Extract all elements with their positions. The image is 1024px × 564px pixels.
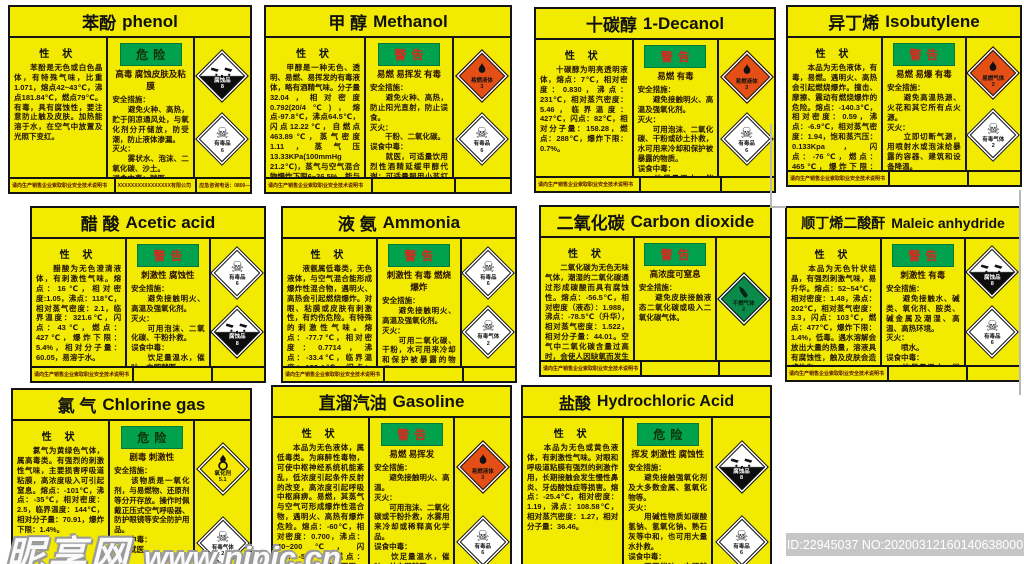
- label-title-chinese: 十碳醇: [586, 11, 637, 36]
- properties-column: 性 状 甲醇是一种无色、透明、易燃、易挥发的有毒液体，略有酒精气味。分子量32.…: [266, 38, 366, 177]
- signal-word: 警告: [893, 43, 955, 66]
- flammable-liquid-diamond-icon: 易燃液体3: [454, 48, 510, 104]
- label-body: 性 状 本品为无色针状结晶，有强烈刺激气味，易升华。熔点：52~54℃，相对密度…: [787, 239, 1019, 365]
- hazard-statements: 刺激性 有毒: [886, 269, 960, 281]
- diamond-content: ☠有毒气体2: [965, 107, 1021, 163]
- label-title-chinese: 甲 醇: [328, 9, 367, 34]
- layout-line-artifact: [770, 206, 786, 208]
- label-title-chinese: 液 氨: [338, 210, 377, 235]
- diamond-content: 腐蚀品8: [964, 244, 1020, 300]
- label-title: 顺丁烯二酸酐 Maleic anhydride: [787, 208, 1019, 239]
- diamond-content: ☠有毒品6: [460, 245, 516, 301]
- image-id-text: ID:22945037 NO:20200312160140638000: [787, 538, 1023, 552]
- safety-measures-text: 安全措施： 避免接触水、碱类、氧化剂、胺类、碱金属及潮湿、高温、高热环境。 灭火…: [886, 284, 960, 365]
- layout-line-artifact: [1019, 190, 1021, 395]
- label-title-chinese: 异丁烯: [828, 9, 879, 34]
- diamond-class-number: 8: [991, 281, 994, 288]
- label-body: 性 状 液氨属低毒类，无色液体，与空气混合能形成爆炸性混合物，遇明火、高热会引起…: [283, 239, 515, 366]
- label-title: 液 氨 Ammonia: [283, 208, 515, 239]
- label-title-english: Ammonia: [383, 213, 460, 233]
- properties-text: 二氧化碳为无色无味气体，潮湿的二氧化碳通过形成碳酸而具有腐蚀性。熔点：-56.5…: [545, 263, 629, 360]
- label-title-english: phenol: [122, 12, 178, 32]
- label-title-english: Chlorine gas: [102, 395, 205, 415]
- label-title-chinese: 顺丁烯二酸酐: [801, 213, 885, 233]
- hazard-statements: 易燃 易挥发: [374, 448, 449, 460]
- diamond-column: ☠有毒品6腐蚀品8: [211, 239, 264, 366]
- footer-company: [385, 368, 464, 381]
- diamond-class-number: 6: [481, 550, 484, 557]
- footer-note: 请向生产销售企业索取职业安全技术说明书: [10, 179, 116, 192]
- diamond-class-number: 6: [236, 281, 239, 288]
- skull-icon: ☠: [216, 124, 229, 141]
- warning-column: 危险 挥发 刺激性 腐蚀性 安全措施： 避免接触强氧化剂及大多数金属、氢氧化物等…: [624, 418, 713, 564]
- label-title: 氯 气 Chlorine gas: [13, 390, 250, 421]
- safety-measures-text: 安全措施： 避免接触强氧化剂及大多数金属、氢氧化物等。 灭火： 用碱性物质如碳酸…: [628, 463, 707, 564]
- signal-word: 危险: [637, 423, 699, 446]
- hazard-statements: 高浓度可窒息: [639, 268, 711, 280]
- properties-heading: 性 状: [527, 425, 618, 440]
- label-title-chinese: 苯酚: [82, 9, 116, 34]
- toxic-diamond-icon: ☠有毒品6: [455, 514, 511, 564]
- footer-note: 请向生产销售企业索取职业安全技术说明书: [787, 367, 889, 380]
- skull-icon: ☠: [740, 124, 753, 141]
- properties-text: 醋酸为无色澄清液体，有刺激性气味。熔点：16℃，相对密度:1.05，沸点：118…: [36, 264, 121, 363]
- diamond-class-number: 2: [992, 82, 995, 89]
- signal-word: 危险: [120, 43, 182, 66]
- properties-heading: 性 状: [540, 47, 628, 62]
- toxic-diamond-icon: ☠有毒品6: [714, 514, 770, 564]
- safety-measures-text: 安全措施： 避免火种、高热，贮于阴凉通风处，与氧化剂分开储放，防受潮，防止液体渗…: [112, 95, 188, 177]
- diamond-class-number: 3: [480, 84, 483, 91]
- corrosive-icon: [210, 61, 234, 78]
- label-title-english: Maleic anhydride: [891, 215, 1005, 231]
- image-id-bar: ID:22945037 NO:20200312160140638000: [786, 533, 1024, 556]
- hazard-statements: 刺激性 有毒 燃烧 爆炸: [382, 269, 456, 293]
- corrosive-icon: [980, 258, 1004, 275]
- safety-measures-text: 安全措施： 避免接触明火、高温及强氧化剂。 灭火： 可用泡沫、二氧化碳、干粉扑救…: [131, 284, 205, 366]
- hazard-statements: 刺激性 腐蚀性: [131, 269, 205, 281]
- oxidizer-diamond-icon: 氧化剂5.1: [195, 441, 251, 497]
- chemical-safety-label: 氯 气 Chlorine gas 性 状 氯气为黄绿色气体，属高毒类。有强烈的刺…: [11, 388, 252, 564]
- label-title-english: Isobutylene: [885, 12, 979, 32]
- diamond-class-number: 6: [487, 281, 490, 288]
- corrosive-diamond-icon: 腐蚀品8: [714, 439, 770, 495]
- diamond-class-number: 5.1: [219, 477, 227, 484]
- footer-note: 请向生产销售企业索取职业安全技术说明书: [266, 179, 373, 192]
- signal-word: 警告: [388, 244, 450, 267]
- diamond-class-number: 6: [745, 148, 748, 155]
- label-title-chinese: 盐酸: [559, 390, 591, 414]
- chemical-safety-label: 盐酸 Hydrochloric Acid 性 状 本品为无色或黄色液体，有刺激性…: [521, 385, 772, 564]
- properties-text: 本品为无色液体，属低毒类。为麻醉性毒物，可使中枢神经系统机能紊乱，低浓度引起条件…: [277, 443, 364, 564]
- toxic-diamond-icon: ☠有毒品6: [460, 245, 516, 301]
- card-footer: 请向生产销售企业索取职业安全技术说明书: [787, 365, 1019, 380]
- skull-icon: ☠: [482, 258, 495, 275]
- diamond-column: 腐蚀品8☠有毒品6: [195, 38, 250, 177]
- warning-column: 警告 易燃 有毒 安全措施： 避免接触明火、高温及强氧化剂。 灭火： 可用泡沫、…: [634, 40, 720, 176]
- warning-column: 危险 剧毒 刺激性 安全措施： 该物质是一氧化剂，与易燃物、还原剂等分开存放。操…: [110, 421, 195, 564]
- chemical-safety-label: 顺丁烯二酸酐 Maleic anhydride 性 状 本品为无色针状结晶，有强…: [785, 206, 1021, 382]
- toxic-diamond-icon: ☠有毒品6: [194, 111, 250, 167]
- properties-column: 性 状 氯气为黄绿色气体，属高毒类。有强烈的刺激性气味，主要损害呼吸道粘膜，高浓…: [13, 421, 110, 564]
- skull-icon: ☠: [216, 528, 229, 545]
- chemical-safety-label: 二氧化碳 Carbon dioxide 性 状 二氧化碳为无色无味气体，潮湿的二…: [539, 205, 772, 377]
- signal-word: 警告: [381, 423, 443, 446]
- corrosive-diamond-icon: 腐蚀品8: [209, 304, 265, 360]
- properties-text: 液氨属低毒类，无色液体，与空气混合能形成爆炸性混合物，遇明火、高热会引起燃烧爆炸…: [287, 264, 372, 366]
- skull-icon: ☠: [231, 258, 244, 275]
- diamond-column: 易燃液体3☠有毒品6: [455, 418, 510, 564]
- diamond-content: 易燃液体3: [455, 439, 511, 495]
- card-footer: 请向生产销售企业索取职业安全技术说明书: [283, 366, 515, 381]
- diamond-content: 腐蚀品8: [714, 439, 770, 495]
- footer-note: 请向生产销售企业索取职业安全技术说明书: [541, 362, 642, 375]
- signal-word: 危险: [121, 426, 183, 449]
- warning-column: 警告 易燃 易挥发 有毒 安全措施： 避免火种、高热，防止阳光直射，防止误食。 …: [366, 38, 454, 177]
- label-body: 性 状 本品为无色液体，属低毒类。为麻醉性毒物，可使中枢神经系统机能紊乱，低浓度…: [273, 418, 510, 564]
- flammable-gas-diamond-icon: 易燃气体2: [965, 45, 1021, 101]
- footer-company: [890, 172, 969, 185]
- corrosive-icon: [730, 452, 754, 469]
- properties-heading: 性 状: [792, 45, 877, 60]
- hazard-statements: 高毒 腐蚀皮肤及粘膜: [112, 68, 188, 92]
- footer-phone: [464, 368, 515, 381]
- diamond-class-number: 2: [742, 307, 745, 314]
- label-title-english: Gasoline: [393, 392, 465, 412]
- diamond-content: ☠有毒气体2: [460, 304, 516, 360]
- label-title-english: 1-Decanol: [643, 14, 724, 34]
- footer-note: 请向生产销售企业索取职业安全技术说明书: [788, 172, 890, 185]
- label-title-english: Carbon dioxide: [631, 212, 755, 232]
- toxic-gas-diamond-icon: ☠有毒气体2: [195, 515, 251, 564]
- label-title-chinese: 二氧化碳: [557, 209, 625, 234]
- diamond-class-number: 3: [481, 475, 484, 482]
- card-footer: 请向生产销售企业索取职业安全技术说明书 XXXXXXXXXXXXXXXX有限公司…: [10, 177, 250, 192]
- oxidizer-icon: [215, 454, 231, 471]
- corrosive-icon: [225, 317, 249, 334]
- footer-note: 请向生产销售企业索取职业安全技术说明书: [536, 178, 641, 191]
- footer-company: [373, 179, 456, 192]
- properties-text: 十碳醇为明亮透明液体，熔点：7℃，相对密度：0.830，沸点：231℃，相对蒸汽…: [540, 65, 628, 154]
- diamond-content: 腐蚀品8: [194, 48, 250, 104]
- properties-column: 性 状 液氨属低毒类，无色液体，与空气混合能形成爆炸性混合物，遇明火、高热会引起…: [283, 239, 378, 366]
- diamond-class-number: 8: [221, 84, 224, 91]
- label-title-chinese: 氯 气: [58, 392, 97, 417]
- hazard-statements: 易燃 有毒: [638, 70, 714, 82]
- footer-company: [642, 362, 720, 375]
- properties-column: 性 状 本品为无色针状结晶，有强烈刺激气味，易升华。熔点：52~54℃，相对密度…: [787, 239, 882, 365]
- chemical-safety-label: 十碳醇 1-Decanol 性 状 十碳醇为明亮透明液体，熔点：7℃，相对密度：…: [534, 7, 776, 193]
- label-body: 性 状 醋酸为无色澄清液体，有刺激性气味。熔点：16℃，相对密度:1.05，沸点…: [32, 239, 264, 366]
- toxic-diamond-icon: ☠有毒品6: [964, 304, 1020, 360]
- toxic-gas-diamond-icon: ☠有毒气体2: [460, 304, 516, 360]
- skull-icon: ☠: [735, 527, 748, 544]
- diamond-content: ☠有毒品6: [194, 111, 250, 167]
- diamond-column: ☠有毒品6☠有毒气体2: [462, 239, 515, 366]
- footer-phone: [720, 362, 770, 375]
- diamond-class-number: 8: [236, 341, 239, 348]
- footer-note: 请向生产销售企业索取职业安全技术说明书: [32, 368, 134, 381]
- hazard-statements: 易燃 易爆 有毒: [887, 68, 961, 80]
- card-footer: 请向生产销售企业索取职业安全技术说明书: [536, 176, 774, 191]
- footer-phone: [456, 179, 510, 192]
- safety-measures-text: 安全措施： 避免接触明火、高温及强氧化剂。 灭火： 可用二氧化碳、干粉，水可用来…: [382, 296, 456, 366]
- corrosive-diamond-icon: 腐蚀品8: [194, 48, 250, 104]
- skull-icon: ☠: [986, 317, 999, 334]
- properties-heading: 性 状: [287, 246, 372, 261]
- footer-phone: [969, 172, 1020, 185]
- corrosive-diamond-icon: 腐蚀品8: [964, 244, 1020, 300]
- warning-column: 警告 刺激性 有毒 燃烧 爆炸 安全措施： 避免接触明火、高温及强氧化剂。 灭火…: [378, 239, 462, 366]
- flame-icon: [739, 62, 755, 79]
- hazard-statements: 易燃 易挥发 有毒: [370, 68, 448, 80]
- footer-phone: [213, 368, 264, 381]
- properties-column: 性 状 二氧化碳为无色无味气体，潮湿的二氧化碳通过形成碳酸而具有腐蚀性。熔点：-…: [541, 238, 635, 360]
- warning-column: 警告 刺激性 腐蚀性 安全措施： 避免接触明火、高温及强氧化剂。 灭火： 可用泡…: [127, 239, 211, 366]
- chemical-safety-label: 直溜汽油 Gasoline 性 状 本品为无色液体，属低毒类。为麻醉性毒物，可使…: [271, 385, 512, 564]
- diamond-content: 易燃气体2: [965, 45, 1021, 101]
- footer-phone: 应急咨询电话：0800—0000000: [197, 179, 250, 192]
- label-title: 甲 醇 Methanol: [266, 7, 510, 38]
- diamond-class-number: 2: [221, 551, 224, 558]
- properties-heading: 性 状: [17, 428, 104, 443]
- signal-word: 警告: [644, 45, 706, 68]
- properties-column: 性 状 苯酚是无色或白色晶体，有特殊气味，比重1.071，熔点42~43℃，沸点…: [10, 38, 108, 177]
- diamond-content: 不燃气体2: [716, 271, 772, 327]
- skull-icon: ☠: [476, 527, 489, 544]
- flame-icon: [474, 61, 490, 78]
- footer-phone: [722, 178, 774, 191]
- footer-company: XXXXXXXXXXXXXXXX有限公司: [116, 179, 198, 192]
- chemical-safety-label: 液 氨 Ammonia 性 状 液氨属低毒类，无色液体，与空气混合能形成爆炸性混…: [281, 206, 517, 383]
- warning-column: 警告 易燃 易爆 有毒 安全措施： 避免高温热源、火花和其它所有点火源。 灭火：…: [883, 38, 967, 170]
- skull-icon: ☠: [482, 317, 495, 334]
- label-body: 性 状 十碳醇为明亮透明液体，熔点：7℃，相对密度：0.830，沸点：231℃，…: [536, 40, 774, 176]
- safety-measures-text: 安全措施： 避免火种、高热，防止阳光直射，防止误食。 灭火： 干粉、二氧化碳。 …: [370, 83, 448, 177]
- diamond-content: 腐蚀品8: [209, 304, 265, 360]
- diamond-content: ☠有毒品6: [455, 514, 511, 564]
- label-title: 异丁烯 Isobutylene: [788, 7, 1020, 38]
- diamond-content: 易燃液体3: [454, 48, 510, 104]
- properties-column: 性 状 十碳醇为明亮透明液体，熔点：7℃，相对密度：0.830，沸点：231℃，…: [536, 40, 634, 176]
- diamond-content: ☠有毒品6: [964, 304, 1020, 360]
- chemical-safety-label: 异丁烯 Isobutylene 性 状 本品为无色液体，有毒，易燃。遇明火、高热…: [786, 5, 1022, 187]
- warning-column: 警告 高浓度可窒息 安全措施： 避免皮肤接触液态二氧化碳或吸入二氧化碳气体。: [635, 238, 717, 360]
- label-body: 性 状 本品为无色液体，有毒，易燃。遇明火、高热会引起燃烧爆炸。撞击、摩擦、震动…: [788, 38, 1020, 170]
- skull-icon: ☠: [475, 124, 488, 141]
- diamond-content: ☠有毒品6: [719, 111, 775, 167]
- stock-image-preview: { "shared": { "props_heading": "性 状" }, …: [0, 0, 1024, 564]
- properties-heading: 性 状: [791, 246, 876, 261]
- flammable-liquid-diamond-icon: 易燃液体3: [455, 439, 511, 495]
- safety-measures-text: 安全措施： 该物质是一氧化剂，与易燃物、还原剂等分开存放。操作时佩戴正压式空气呼…: [114, 466, 189, 555]
- properties-heading: 性 状: [36, 246, 121, 261]
- safety-measures-text: 安全措施： 避免接触明火、高温及强氧化剂。 灭火： 可用泡沫、二氧化碳、干粉或砂…: [638, 85, 714, 176]
- diamond-content: ☠有毒品6: [209, 245, 265, 301]
- diamond-content: ☠有毒品6: [454, 111, 510, 167]
- label-body: 性 状 甲醇是一种无色、透明、易燃、易挥发的有毒液体，略有酒精气味。分子量32.…: [266, 38, 510, 177]
- diamond-column: 易燃液体3☠有毒品6: [719, 40, 774, 176]
- properties-column: 性 状 本品为无色液体，有毒，易燃。遇明火、高热会引起燃烧爆炸。撞击、摩擦、震动…: [788, 38, 883, 170]
- footer-company: [641, 178, 722, 191]
- label-title: 直溜汽油 Gasoline: [273, 387, 510, 418]
- label-body: 性 状 氯气为黄绿色气体，属高毒类。有强烈的刺激性气味，主要损害呼吸道粘膜，高浓…: [13, 421, 250, 564]
- label-title: 盐酸 Hydrochloric Acid: [523, 387, 770, 418]
- diamond-content: 氧化剂5.1: [195, 441, 251, 497]
- toxic-gas-diamond-icon: ☠有毒气体2: [965, 107, 1021, 163]
- warning-column: 警告 易燃 易挥发 安全措施： 避免接触明火、高温。 灭火： 可用泡沫、二氧化碳…: [370, 418, 455, 564]
- chemical-safety-label: 苯酚 phenol 性 状 苯酚是无色或白色晶体，有特殊气味，比重1.071，熔…: [8, 5, 252, 194]
- properties-text: 本品为无色或黄色液体，有刺激性气味。对眼和呼吸道粘膜有强烈的刺激作用，长期接触会…: [527, 443, 618, 532]
- toxic-diamond-icon: ☠有毒品6: [209, 245, 265, 301]
- properties-column: 性 状 本品为无色或黄色液体，有刺激性气味。对眼和呼吸道粘膜有强烈的刺激作用，长…: [523, 418, 624, 564]
- safety-measures-text: 安全措施： 避免高温热源、火花和其它所有点火源。 灭火： 立即切断气源，用喷射水…: [887, 83, 961, 170]
- label-title: 苯酚 phenol: [10, 7, 250, 38]
- cylinder-icon: [735, 284, 752, 301]
- card-footer: 请向生产销售企业索取职业安全技术说明书: [266, 177, 510, 192]
- signal-word: 警告: [644, 243, 706, 266]
- diamond-content: 易燃液体3: [719, 49, 775, 105]
- label-title-english: Hydrochloric Acid: [597, 393, 734, 411]
- properties-heading: 性 状: [277, 425, 364, 440]
- properties-text: 本品为无色液体，有毒，易燃。遇明火、高热会引起燃烧爆炸。撞击、摩擦、震动有燃烧爆…: [792, 63, 877, 170]
- properties-heading: 性 状: [270, 45, 360, 60]
- card-footer: 请向生产销售企业索取职业安全技术说明书: [788, 170, 1020, 185]
- properties-heading: 性 状: [14, 45, 102, 60]
- diamond-class-number: 2: [487, 341, 490, 348]
- signal-word: 警告: [378, 43, 440, 66]
- properties-text: 苯酚是无色或白色晶体，有特殊气味，比重1.071，熔点42~43℃，沸点181.…: [14, 63, 102, 142]
- chemical-safety-label: 醋 酸 Acetic acid 性 状 醋酸为无色澄清液体，有刺激性气味。熔点：…: [30, 206, 266, 383]
- diamond-column: 易燃液体3☠有毒品6: [454, 38, 510, 177]
- properties-column: 性 状 醋酸为无色澄清液体，有刺激性气味。熔点：16℃，相对密度:1.05，沸点…: [32, 239, 127, 366]
- diamond-class-number: 3: [745, 85, 748, 92]
- footer-company: [134, 368, 213, 381]
- diamond-class-number: 6: [740, 550, 743, 557]
- footer-phone: [968, 367, 1019, 380]
- skull-icon: ☠: [987, 120, 1000, 137]
- nonflammable-gas-diamond-icon: 不燃气体2: [716, 271, 772, 327]
- diamond-column: 氧化剂5.1☠有毒气体2: [195, 421, 250, 564]
- card-footer: 请向生产销售企业索取职业安全技术说明书: [32, 366, 264, 381]
- label-title-chinese: 醋 酸: [81, 210, 120, 235]
- diamond-content: ☠有毒品6: [714, 514, 770, 564]
- diamond-class-number: 8: [740, 475, 743, 482]
- safety-measures-text: 安全措施： 避免接触明火、高温。 灭火： 可用泡沫、二氧化碳或干粉扑救，水雾用来…: [374, 463, 449, 564]
- properties-text: 本品为无色针状结晶，有强烈刺激气味，易升华。熔点：52~54℃，相对密度：1.4…: [791, 264, 876, 365]
- diamond-column: 腐蚀品8☠有毒品6: [966, 239, 1019, 365]
- hazard-statements: 剧毒 刺激性: [114, 451, 189, 463]
- diamond-column: 腐蚀品8☠有毒品6: [713, 418, 770, 564]
- properties-heading: 性 状: [545, 245, 629, 260]
- label-body: 性 状 本品为无色或黄色液体，有刺激性气味。对眼和呼吸道粘膜有强烈的刺激作用，长…: [523, 418, 770, 564]
- diamond-column: 易燃气体2☠有毒气体2: [967, 38, 1020, 170]
- signal-word: 警告: [137, 244, 199, 267]
- properties-column: 性 状 本品为无色液体，属低毒类。为麻醉性毒物，可使中枢神经系统机能紊乱，低浓度…: [273, 418, 370, 564]
- label-title: 二氧化碳 Carbon dioxide: [541, 207, 770, 238]
- diamond-content: ☠有毒气体2: [195, 515, 251, 564]
- flammable-liquid-diamond-icon: 易燃液体3: [719, 49, 775, 105]
- flame-icon: [475, 452, 491, 469]
- footer-company: [889, 367, 968, 380]
- diamond-column: 不燃气体2: [717, 238, 770, 360]
- chemical-safety-label: 甲 醇 Methanol 性 状 甲醇是一种无色、透明、易燃、易挥发的有毒液体，…: [264, 5, 512, 194]
- label-title: 十碳醇 1-Decanol: [536, 9, 774, 40]
- label-title-english: Methanol: [373, 12, 448, 32]
- diamond-class-number: 6: [221, 148, 224, 155]
- toxic-diamond-icon: ☠有毒品6: [719, 111, 775, 167]
- safety-measures-text: 安全措施： 避免皮肤接触液态二氧化碳或吸入二氧化碳气体。: [639, 283, 711, 323]
- label-title: 醋 酸 Acetic acid: [32, 208, 264, 239]
- label-body: 性 状 苯酚是无色或白色晶体，有特殊气味，比重1.071，熔点42~43℃，沸点…: [10, 38, 250, 177]
- label-title-chinese: 直溜汽油: [319, 389, 387, 414]
- warning-column: 警告 刺激性 有毒 安全措施： 避免接触水、碱类、氧化剂、胺类、碱金属及潮湿、高…: [882, 239, 966, 365]
- diamond-class-number: 6: [991, 340, 994, 347]
- properties-text: 甲醇是一种无色、透明、易燃、易挥发的有毒液体，略有酒精气味。分子量32.04，相…: [270, 63, 360, 177]
- toxic-diamond-icon: ☠有毒品6: [454, 111, 510, 167]
- card-footer: 请向生产销售企业索取职业安全技术说明书: [541, 360, 770, 375]
- diamond-class-number: 2: [992, 143, 995, 150]
- flame-icon: [985, 59, 1001, 76]
- signal-word: 警告: [892, 244, 954, 267]
- label-body: 性 状 二氧化碳为无色无味气体，潮湿的二氧化碳通过形成碳酸而具有腐蚀性。熔点：-…: [541, 238, 770, 360]
- footer-note: 请向生产销售企业索取职业安全技术说明书: [283, 368, 385, 381]
- label-title-english: Acetic acid: [125, 213, 215, 233]
- warning-column: 危险 高毒 腐蚀皮肤及粘膜 安全措施： 避免火种、高热，贮于阴凉通风处，与氧化剂…: [108, 38, 194, 177]
- properties-text: 氯气为黄绿色气体，属高毒类。有强烈的刺激性气味，主要损害呼吸道粘膜，高浓度吸入可…: [17, 446, 104, 535]
- hazard-statements: 挥发 刺激性 腐蚀性: [628, 448, 707, 460]
- diamond-class-number: 6: [480, 148, 483, 155]
